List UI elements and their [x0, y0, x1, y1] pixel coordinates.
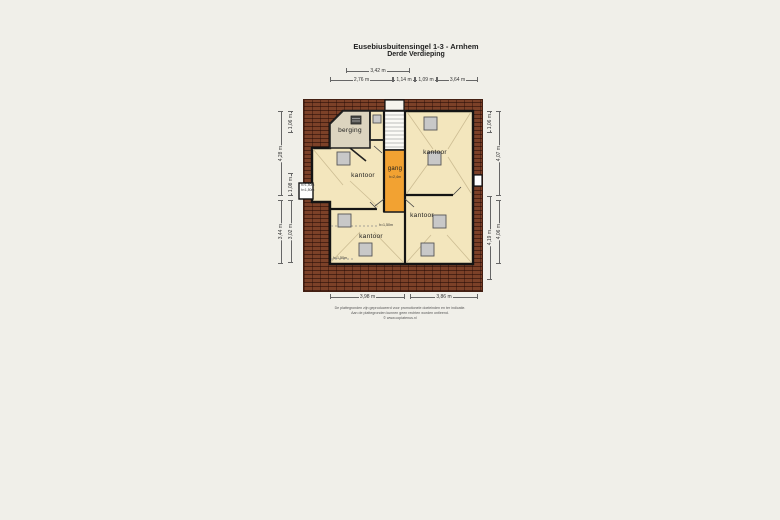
dim-bottom-b: 3,86 m [410, 293, 478, 300]
annotation-sw-height: h=1,50m [364, 223, 408, 227]
roof-window [338, 214, 351, 227]
plan-title-floor: Derde Verdieping [306, 51, 526, 59]
dim-top-row2-a: 2,76 m [330, 76, 393, 83]
dim-right-outer-top: 4,07 m [495, 111, 502, 196]
dim-top-row1: 3,42 m [346, 67, 410, 74]
room-gang-shape [384, 150, 405, 212]
dim-right-inner-bottom: 4,19 m [486, 196, 493, 280]
staircase [384, 111, 405, 150]
dim-left-inner-bottom: 3,02 m [287, 200, 294, 263]
disclaimer-line-3: © www.copiatenus.nl [300, 316, 500, 321]
roof-window [424, 117, 437, 130]
dim-left-outer-top: 4,28 m [277, 111, 284, 196]
roof-window-small [373, 115, 381, 123]
annotation-sw-corner-height: h=1,50m [318, 256, 362, 260]
disclaimer: De plattegronden zijn geproduceerd voor … [300, 306, 500, 320]
dim-left-inner-top: 1,06 m [287, 111, 294, 133]
room-label-gang: gang [373, 166, 417, 173]
roof-window [337, 152, 350, 165]
floor-plan-page: { "title": { "line1": "Eusebiusbuitensin… [0, 0, 780, 520]
right-wall-notch [474, 175, 482, 186]
roof-window [359, 243, 372, 256]
annotation-entry-height-1: h>1,50m [301, 183, 329, 187]
dim-left-inner-mid: 1,08 m [287, 173, 294, 196]
dim-bottom-a: 3,98 m [330, 293, 405, 300]
annotation-gang-height: h=2,4m [373, 175, 417, 179]
room-label-kantoor-sw: kantoor [349, 233, 393, 240]
plan-title-address: Eusebiusbuitensingel 1-3 - Arnhem [306, 43, 526, 51]
boiler-icon [351, 116, 361, 124]
room-label-kantoor-ne: kantoor [413, 149, 457, 156]
dim-right-inner-top: 1,06 m [486, 111, 493, 133]
dim-top-row2-c: 1,09 m [415, 76, 437, 83]
room-label-kantoor-se: kantoor [400, 212, 444, 219]
dim-right-outer-bottom: 4,06 m [495, 200, 502, 264]
room-label-berging: berging [328, 127, 372, 134]
annotation-entry-height-2: h<1,50m [301, 188, 329, 192]
dim-top-row2-d: 3,64 m [437, 76, 478, 83]
plan-title: Eusebiusbuitensingel 1-3 - Arnhem Derde … [306, 43, 526, 59]
dim-left-outer-bottom: 3,44 m [277, 200, 284, 264]
roof-window [421, 243, 434, 256]
floor-plan-drawing [298, 99, 486, 290]
dim-top-row2-b: 1,14 m [393, 76, 415, 83]
